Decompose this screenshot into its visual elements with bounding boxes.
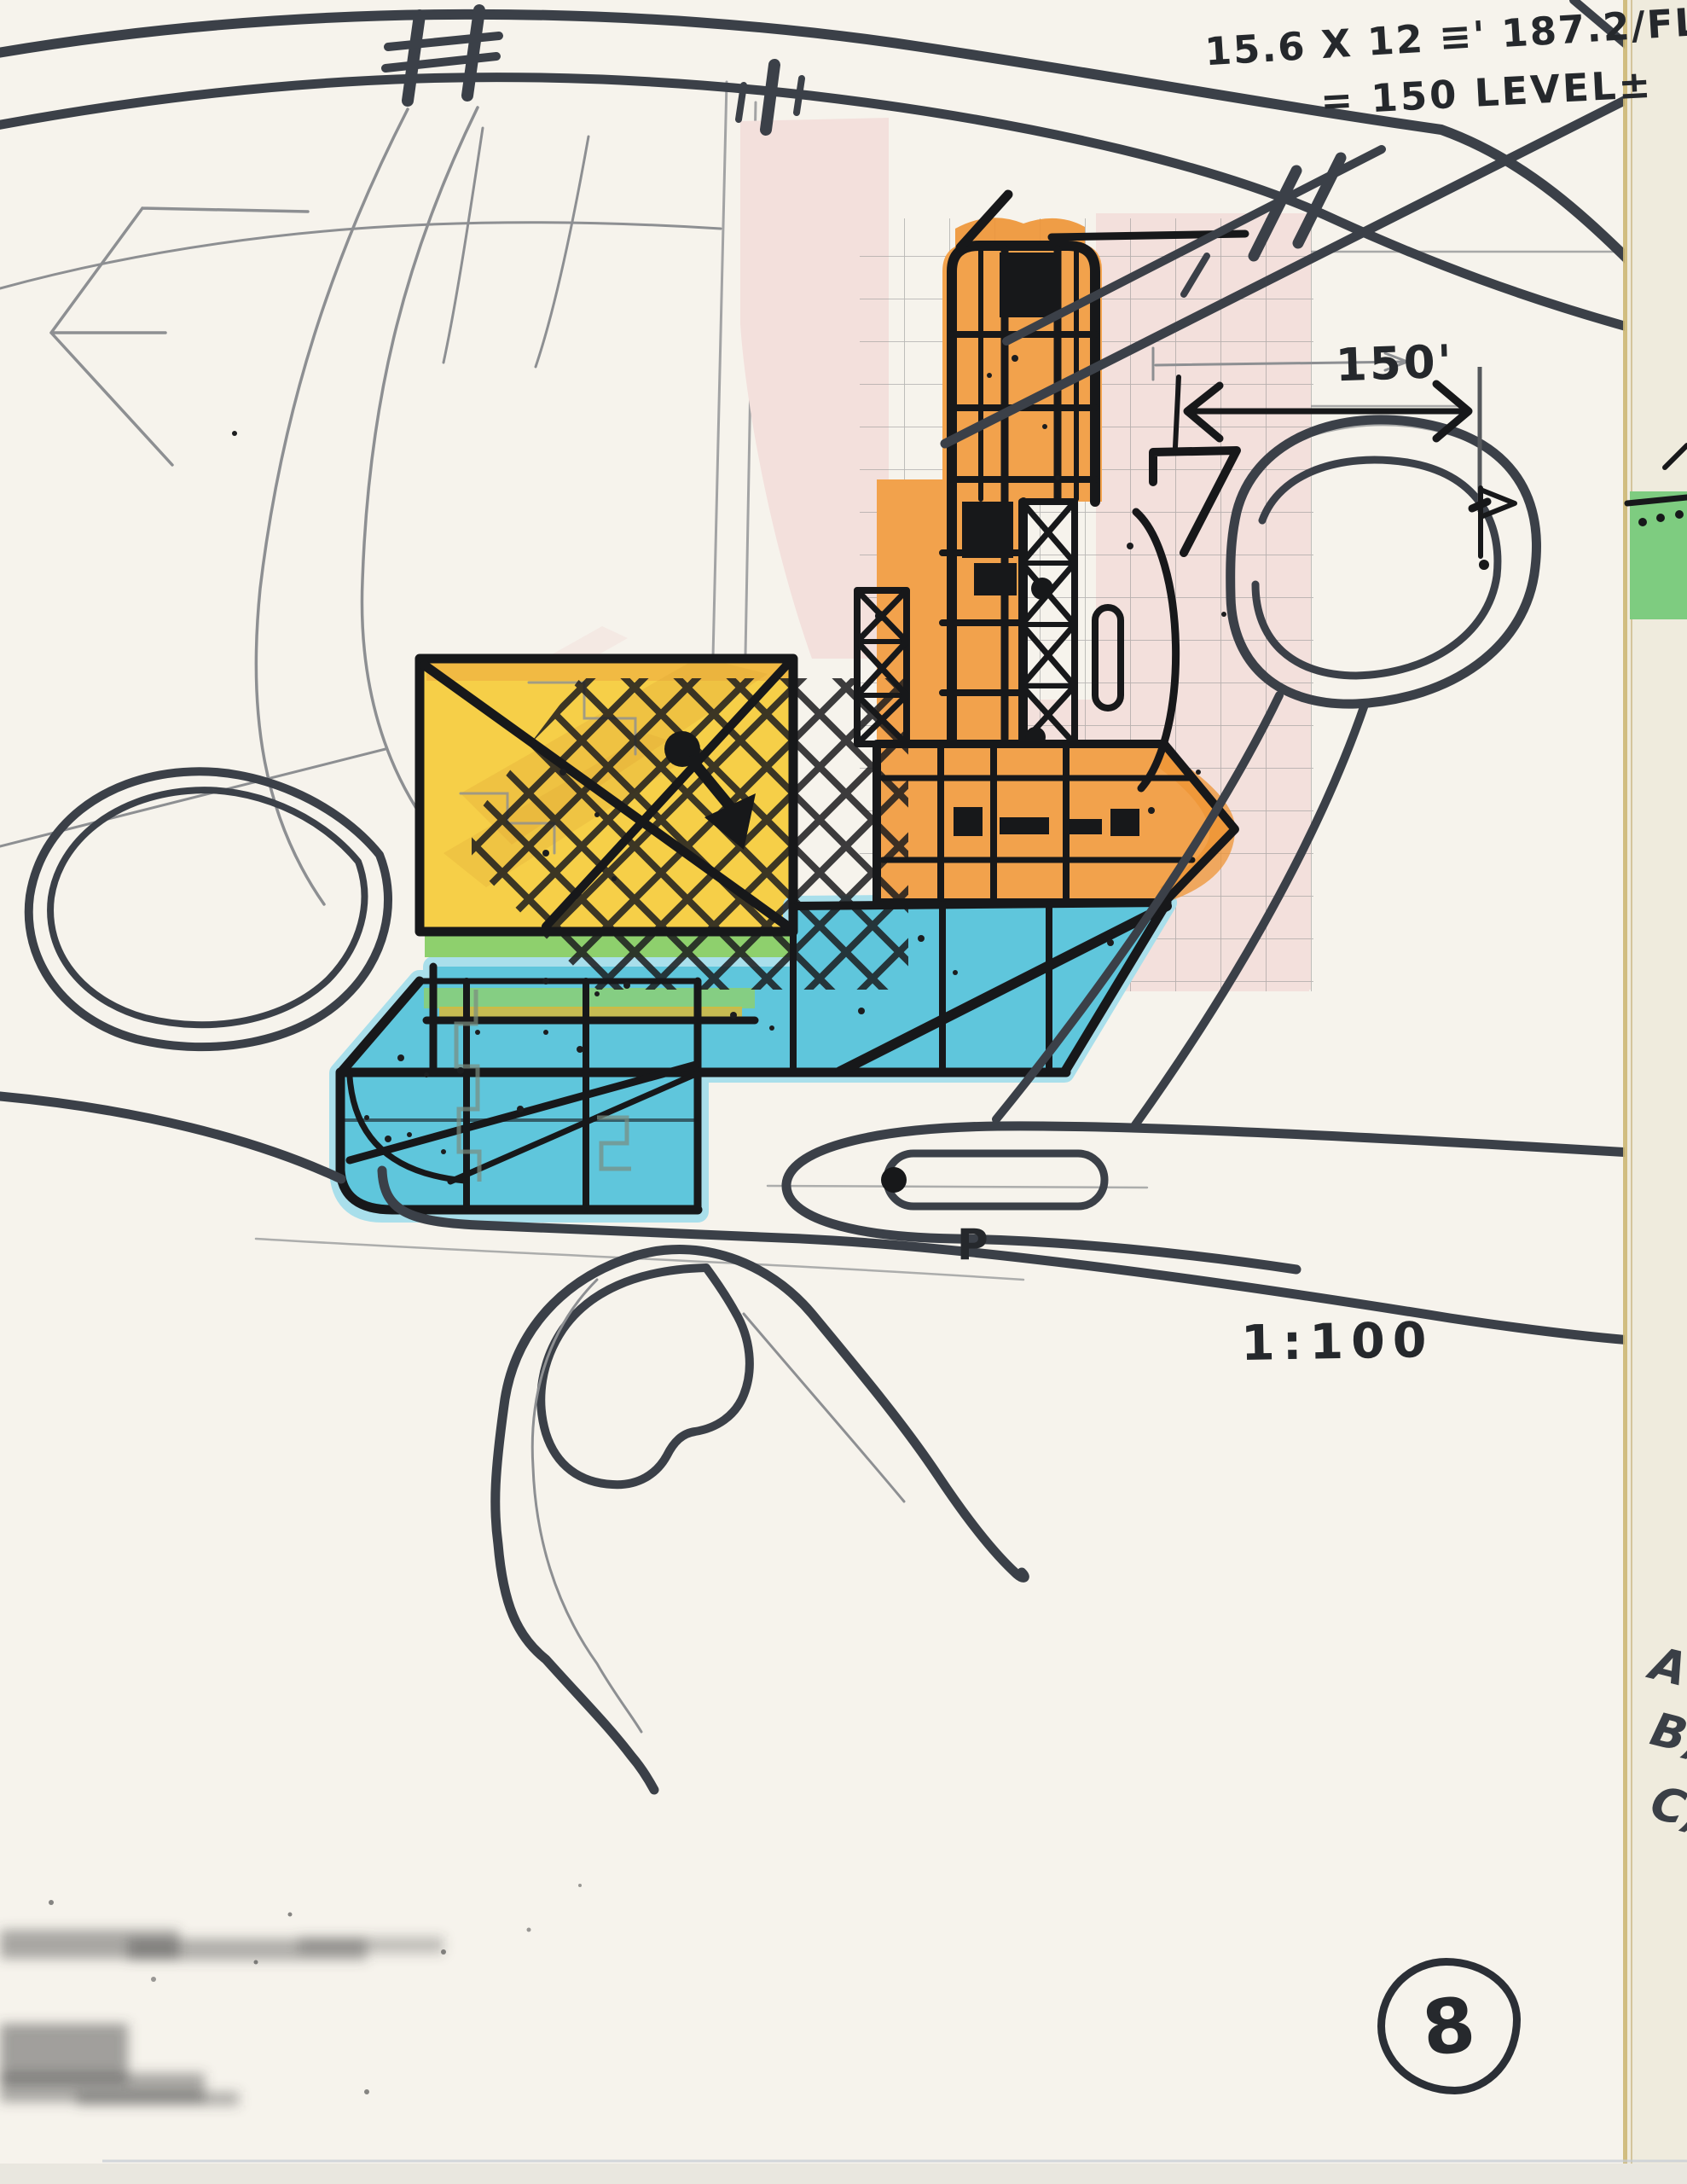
scale-note: 1:100 bbox=[1240, 1312, 1435, 1372]
page-number-circle: 8 bbox=[1377, 1958, 1521, 2094]
bottom-scan-edge bbox=[0, 2161, 1687, 2184]
charcoal-smudges bbox=[0, 1930, 443, 2106]
page-edge-strip bbox=[1623, 0, 1687, 2184]
site-plan-sketch bbox=[0, 0, 1687, 2184]
sketch-page: 15.6 X 12 ≡' 187.2/FL-37 = 150 LEVEL± 15… bbox=[0, 0, 1687, 2184]
page-number: 8 bbox=[1418, 1980, 1480, 2073]
pencil-pentagon bbox=[51, 208, 308, 465]
charcoal-specks bbox=[49, 1884, 582, 2094]
hook-road bbox=[496, 1250, 1025, 1790]
crossing-hash-icon bbox=[386, 10, 499, 101]
parking-label: P bbox=[957, 1220, 988, 1269]
dimension-label-150ft: 150' bbox=[1335, 336, 1455, 392]
binding-edge-line bbox=[1623, 0, 1627, 2184]
berm-loop bbox=[29, 771, 388, 1047]
